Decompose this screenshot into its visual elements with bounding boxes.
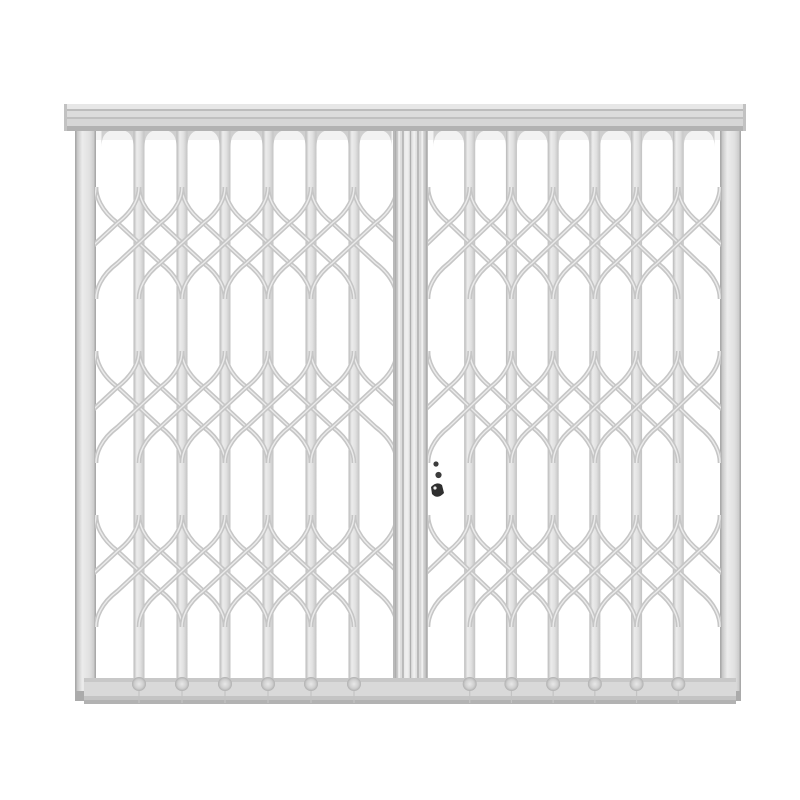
center-stile <box>393 131 428 703</box>
security-gate-svg <box>0 0 800 800</box>
left-frame-post <box>75 131 96 701</box>
right-frame-post <box>720 131 741 701</box>
gate-lock <box>431 461 444 496</box>
product-photo <box>0 0 800 800</box>
header-rail <box>64 104 746 131</box>
